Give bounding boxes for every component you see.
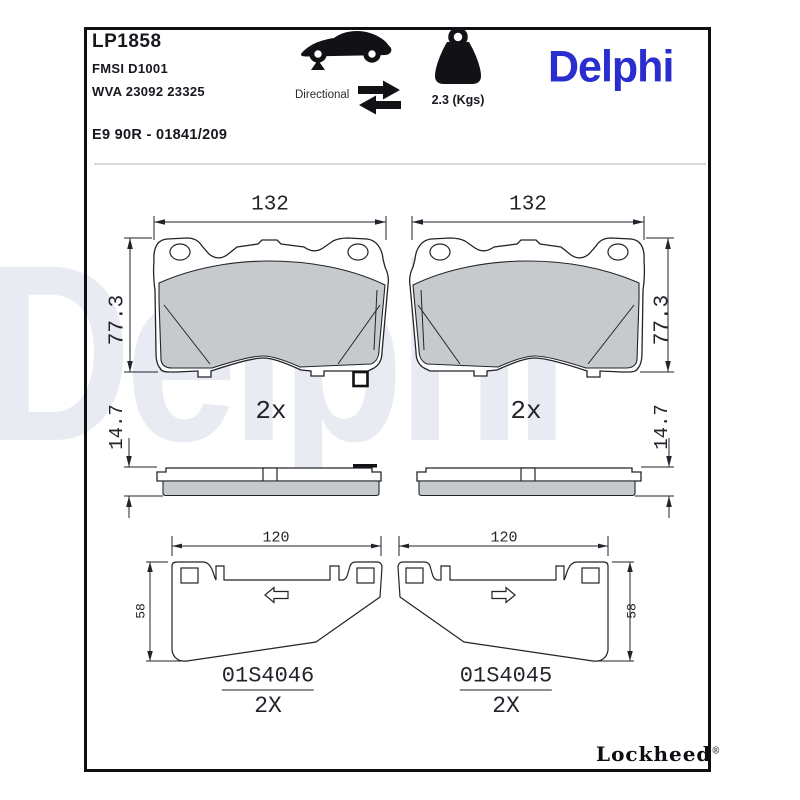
- pad-front-left-drawing: [124, 216, 388, 377]
- pad-right-width-dim: 132: [509, 194, 547, 217]
- wva-number: WVA 23092 23325: [92, 84, 205, 99]
- pad-side-right-drawing: [417, 438, 674, 518]
- wear-clip-edge: [353, 464, 377, 468]
- pad-right-height-dim: 77.3: [652, 295, 675, 345]
- weight-value: 2.3 (Kgs): [426, 93, 490, 107]
- pad-front-right-drawing: [410, 216, 674, 377]
- directional-label: Directional: [295, 89, 349, 101]
- directional-arrows-icon: [357, 79, 402, 116]
- approval-number: E9 90R - 01841/209: [92, 127, 227, 143]
- pad-side-left-drawing: [124, 438, 381, 518]
- lockheed-logo: Lockheed®: [596, 742, 721, 766]
- car-icon: [298, 28, 395, 72]
- pad-right-thickness-dim: 14.7: [651, 404, 673, 450]
- registered-mark: ®: [711, 746, 721, 756]
- shim-left-part-number: 01S4046: [222, 664, 314, 691]
- shim-right-height-dim: 58: [625, 603, 640, 619]
- lockheed-logo-text: Lockheed: [596, 742, 711, 766]
- pad-left-width-dim: 132: [251, 194, 289, 217]
- part-number: LP1858: [92, 31, 162, 53]
- fmsi-number: FMSI D1001: [92, 61, 168, 76]
- pad-left-height-dim: 77.3: [107, 295, 130, 345]
- brake-pad-datasheet: Delphi LP1858 FMSI D1001 WVA 23092 23325…: [0, 0, 800, 800]
- pad-right-qty: 2x: [510, 396, 541, 426]
- delphi-logo: Delphi: [548, 42, 673, 93]
- shim-left-qty: 2X: [254, 693, 282, 719]
- weight-icon: [430, 27, 486, 91]
- shim-left-width-dim: 120: [262, 530, 289, 547]
- shim-left-drawing: [146, 536, 382, 661]
- pad-left-thickness-dim: 14.7: [106, 404, 128, 450]
- shim-right-drawing: [398, 536, 634, 661]
- pad-left-qty: 2x: [255, 396, 286, 426]
- shim-right-width-dim: 120: [490, 530, 517, 547]
- shim-right-qty: 2X: [492, 693, 520, 719]
- wear-indicator-clip: [354, 372, 368, 386]
- shim-right-part-number: 01S4045: [460, 664, 552, 691]
- front-axle-marker: [311, 60, 325, 70]
- shim-left-height-dim: 58: [134, 603, 149, 619]
- technical-drawing: [0, 0, 800, 800]
